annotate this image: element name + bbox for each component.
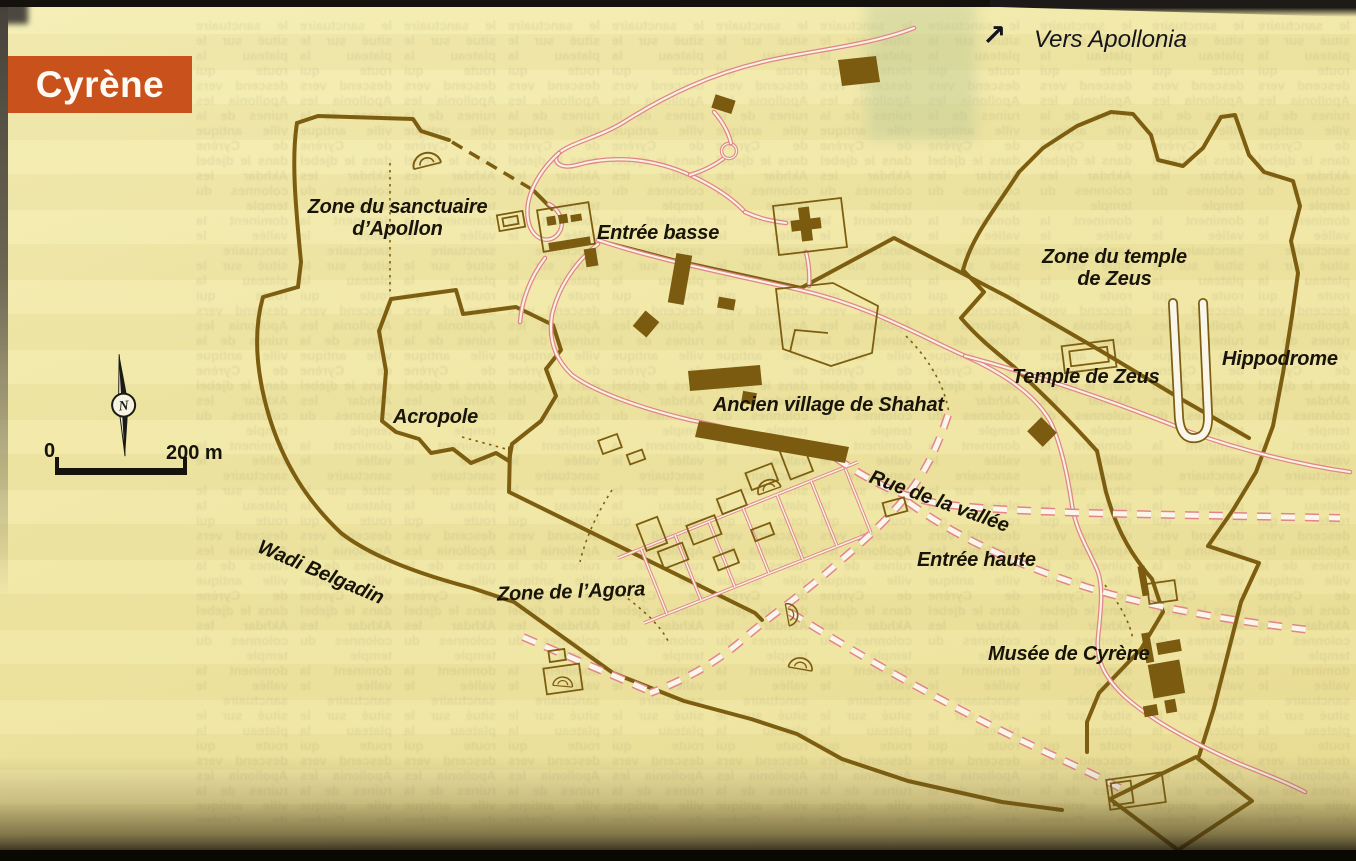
compass-rose: N bbox=[97, 350, 153, 469]
scale-bar bbox=[55, 468, 187, 475]
region-title-banner: Cyrène bbox=[8, 56, 192, 113]
scanned-guidebook-page: le sanctuaire situé sur le plateau la ro… bbox=[0, 0, 1356, 861]
page-bottom-edge bbox=[0, 850, 1356, 861]
hippodrome-track bbox=[1173, 303, 1208, 438]
label-entree-haute: Entrée haute bbox=[917, 549, 1036, 571]
label-ancien-village: Ancien village de Shahat bbox=[713, 394, 944, 416]
agora-buildings bbox=[631, 443, 835, 592]
label-temple-zeus: Temple de Zeus bbox=[1012, 366, 1160, 388]
theater-icon bbox=[411, 150, 441, 169]
theater-icon bbox=[553, 676, 573, 687]
acropolis-wall bbox=[379, 290, 561, 463]
label-sanctuaire-apollon: Zone du sanctuaire d’Apollon bbox=[295, 196, 500, 241]
label-vers-apollonia: Vers Apollonia bbox=[1034, 26, 1187, 54]
label-acropole: Acropole bbox=[393, 406, 478, 428]
northeast-arrow-icon: ↗ bbox=[982, 18, 1006, 52]
compass-north-letter: N bbox=[117, 399, 130, 415]
page-left-edge bbox=[0, 0, 8, 600]
cyrene-site-map bbox=[0, 0, 1356, 861]
agora-street-grid bbox=[618, 462, 871, 623]
label-zone-temple-zeus: Zone du temple de Zeus bbox=[1032, 246, 1197, 291]
region-title: Cyrène bbox=[36, 64, 164, 106]
dashed-roads bbox=[523, 415, 1340, 788]
label-hippodrome: Hippodrome bbox=[1222, 348, 1338, 370]
gate-building bbox=[789, 205, 823, 242]
label-entree-basse: Entrée basse bbox=[597, 222, 719, 244]
label-musee-cyrene: Musée de Cyrène bbox=[988, 643, 1150, 665]
scale-end: 200 m bbox=[166, 442, 223, 465]
scale-start: 0 bbox=[44, 440, 55, 463]
theater-icon bbox=[788, 656, 813, 671]
museum-buildings bbox=[1130, 627, 1192, 717]
